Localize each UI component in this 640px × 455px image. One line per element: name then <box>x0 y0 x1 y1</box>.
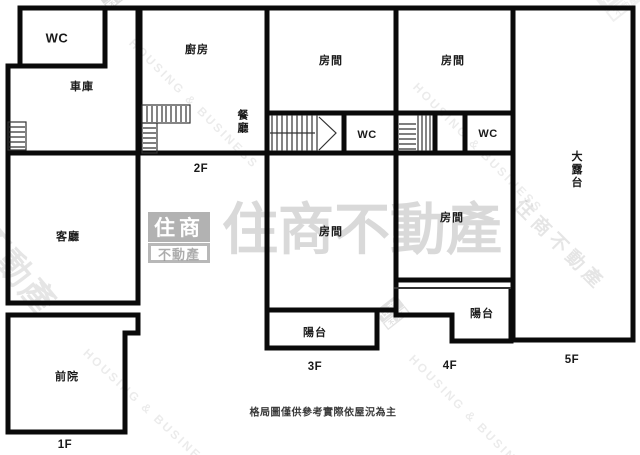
entry-steps-treads <box>9 127 25 147</box>
label-room-3f-back: 房間 <box>319 52 343 68</box>
label-balcony-3f: 陽台 <box>303 324 327 340</box>
label-living-room: 客廳 <box>56 228 80 244</box>
entry-steps-box <box>8 122 26 150</box>
disclaimer-text: 格局圖僅供參考實際依屋況為主 <box>250 404 397 419</box>
label-room-4f-mid: 房間 <box>440 209 464 225</box>
label-front-yard: 前院 <box>55 368 79 384</box>
stairs-2f-lower-treads <box>143 128 156 148</box>
label-terrace-5f: 大露台 <box>568 151 584 190</box>
floor-label-2f: 2F <box>194 163 208 175</box>
floor-plan-canvas: 住商不動產 住商 不動產 住商 不動產 住商 不動產 住商 不動產 住商不動產 … <box>0 0 640 455</box>
floor-label-3f: 3F <box>308 361 322 373</box>
stairs-4f-treads-v <box>418 115 430 151</box>
floor-label-5f: 5F <box>565 354 579 366</box>
floor-label-4f: 4F <box>443 360 457 372</box>
floor-label-1f: 1F <box>58 439 72 451</box>
label-garage: 車庫 <box>70 78 94 94</box>
label-wc-1f: WC <box>46 31 69 46</box>
stairs-3f-arrow <box>319 117 336 150</box>
label-wc-3f: WC <box>357 129 376 141</box>
label-kitchen: 廚房 <box>185 41 209 57</box>
label-room-3f-mid: 房間 <box>319 223 343 239</box>
label-wc-4f: WC <box>478 128 497 140</box>
label-dining: 餐廳 <box>234 109 250 135</box>
stairs-2f-upper-treads <box>147 106 186 122</box>
label-room-4f-back: 房間 <box>441 52 465 68</box>
stairs-4f-treads-h <box>399 124 416 149</box>
label-balcony-4f: 陽台 <box>470 305 494 321</box>
